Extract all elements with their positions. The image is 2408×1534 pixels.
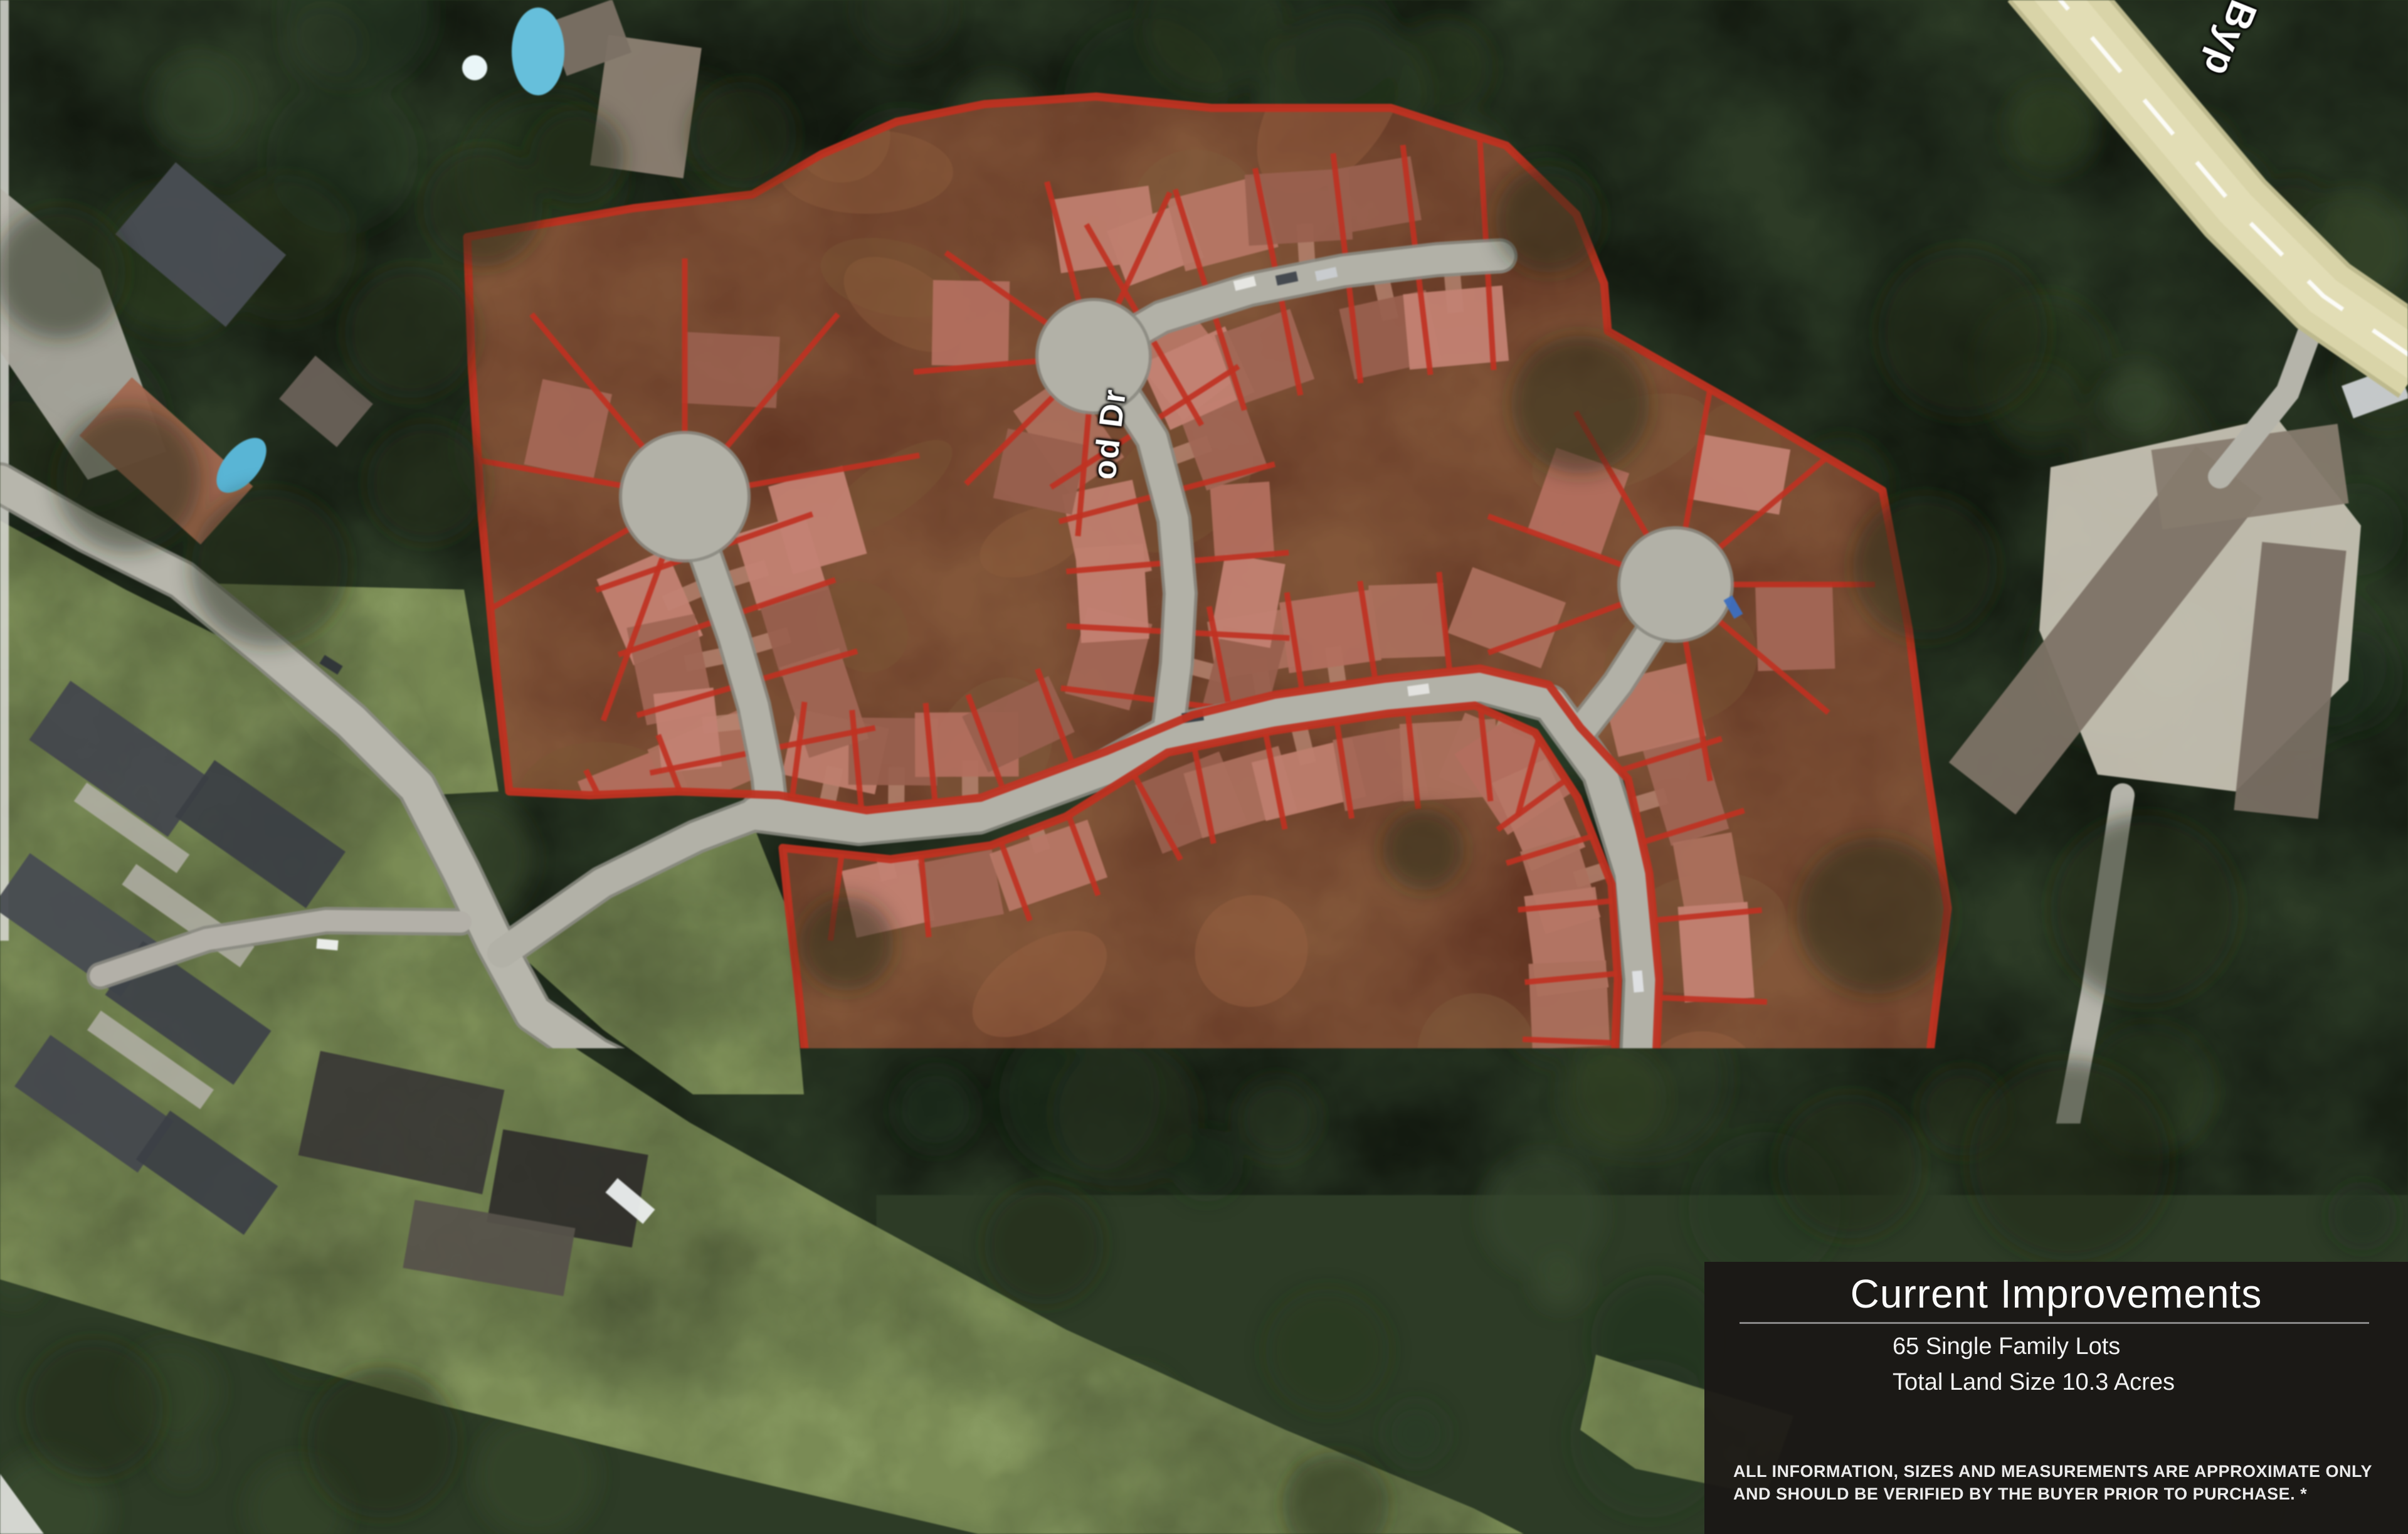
stat-lot-count: 65 Single Family Lots xyxy=(1893,1333,2175,1360)
aerial-map-stage: Lighthouse Crt Driftwood Dr River Bend R… xyxy=(0,0,2408,1534)
panel-disclaimer: ALL INFORMATION, SIZES AND MEASUREMENTS … xyxy=(1733,1460,2373,1505)
panel-title: Current Improvements xyxy=(1704,1271,2408,1317)
panel-divider xyxy=(1740,1322,2369,1324)
stat-land-size: Total Land Size 10.3 Acres xyxy=(1893,1369,2175,1396)
panel-stats: 65 Single Family Lots Total Land Size 10… xyxy=(1893,1333,2175,1396)
info-panel: Current Improvements 65 Single Family Lo… xyxy=(1704,1262,2408,1534)
